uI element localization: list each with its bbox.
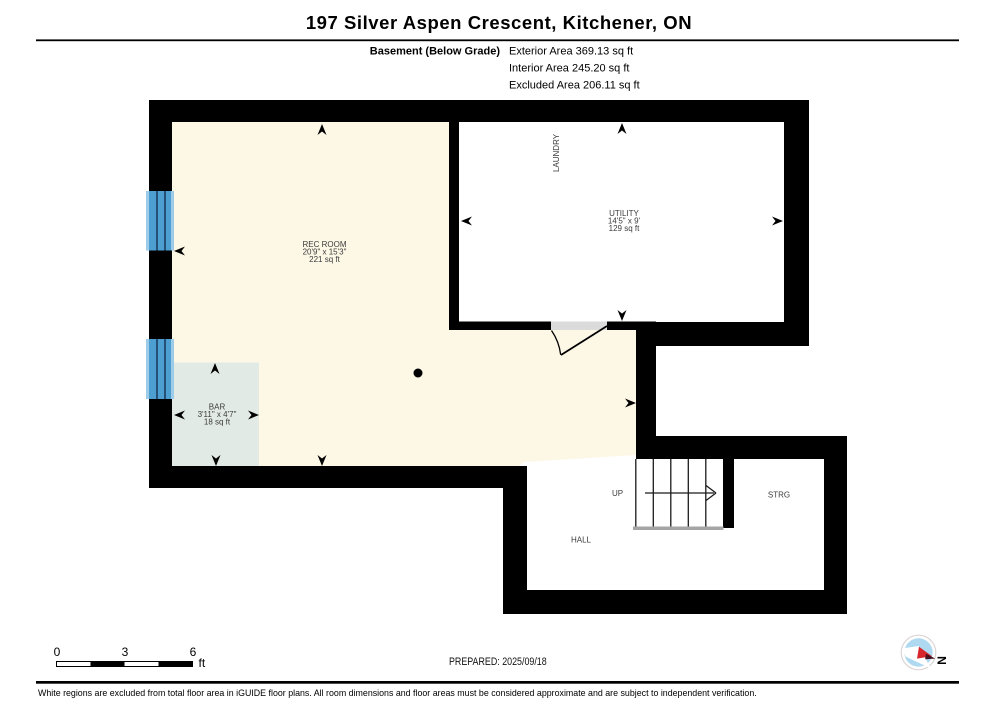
svg-text:Excluded Area 206.11 sq ft: Excluded Area 206.11 sq ft (509, 80, 640, 92)
svg-text:18 sq ft: 18 sq ft (204, 418, 231, 427)
svg-text:Exterior Area 369.13 sq ft: Exterior Area 369.13 sq ft (509, 46, 633, 58)
svg-text:UP: UP (612, 489, 623, 498)
svg-text:221 sq ft: 221 sq ft (309, 255, 340, 264)
svg-text:STRG: STRG (768, 491, 790, 500)
svg-text:3: 3 (122, 645, 129, 659)
svg-text:0: 0 (54, 645, 61, 659)
svg-text:LAUNDRY: LAUNDRY (552, 133, 561, 172)
svg-text:Basement (Below Grade): Basement (Below Grade) (370, 46, 501, 58)
svg-text:197 Silver Aspen Crescent, Kit: 197 Silver Aspen Crescent, Kitchener, ON (306, 12, 692, 33)
svg-text:PREPARED: 2025/09/18: PREPARED: 2025/09/18 (449, 656, 547, 668)
svg-text:129 sq ft: 129 sq ft (609, 224, 640, 233)
svg-text:White regions are excluded fro: White regions are excluded from total fl… (38, 688, 757, 698)
svg-text:HALL: HALL (571, 536, 592, 545)
svg-text:ft: ft (199, 656, 206, 670)
svg-text:Interior Area 245.20 sq ft: Interior Area 245.20 sq ft (509, 63, 629, 75)
svg-text:6: 6 (190, 645, 197, 659)
svg-text:N: N (935, 656, 949, 665)
